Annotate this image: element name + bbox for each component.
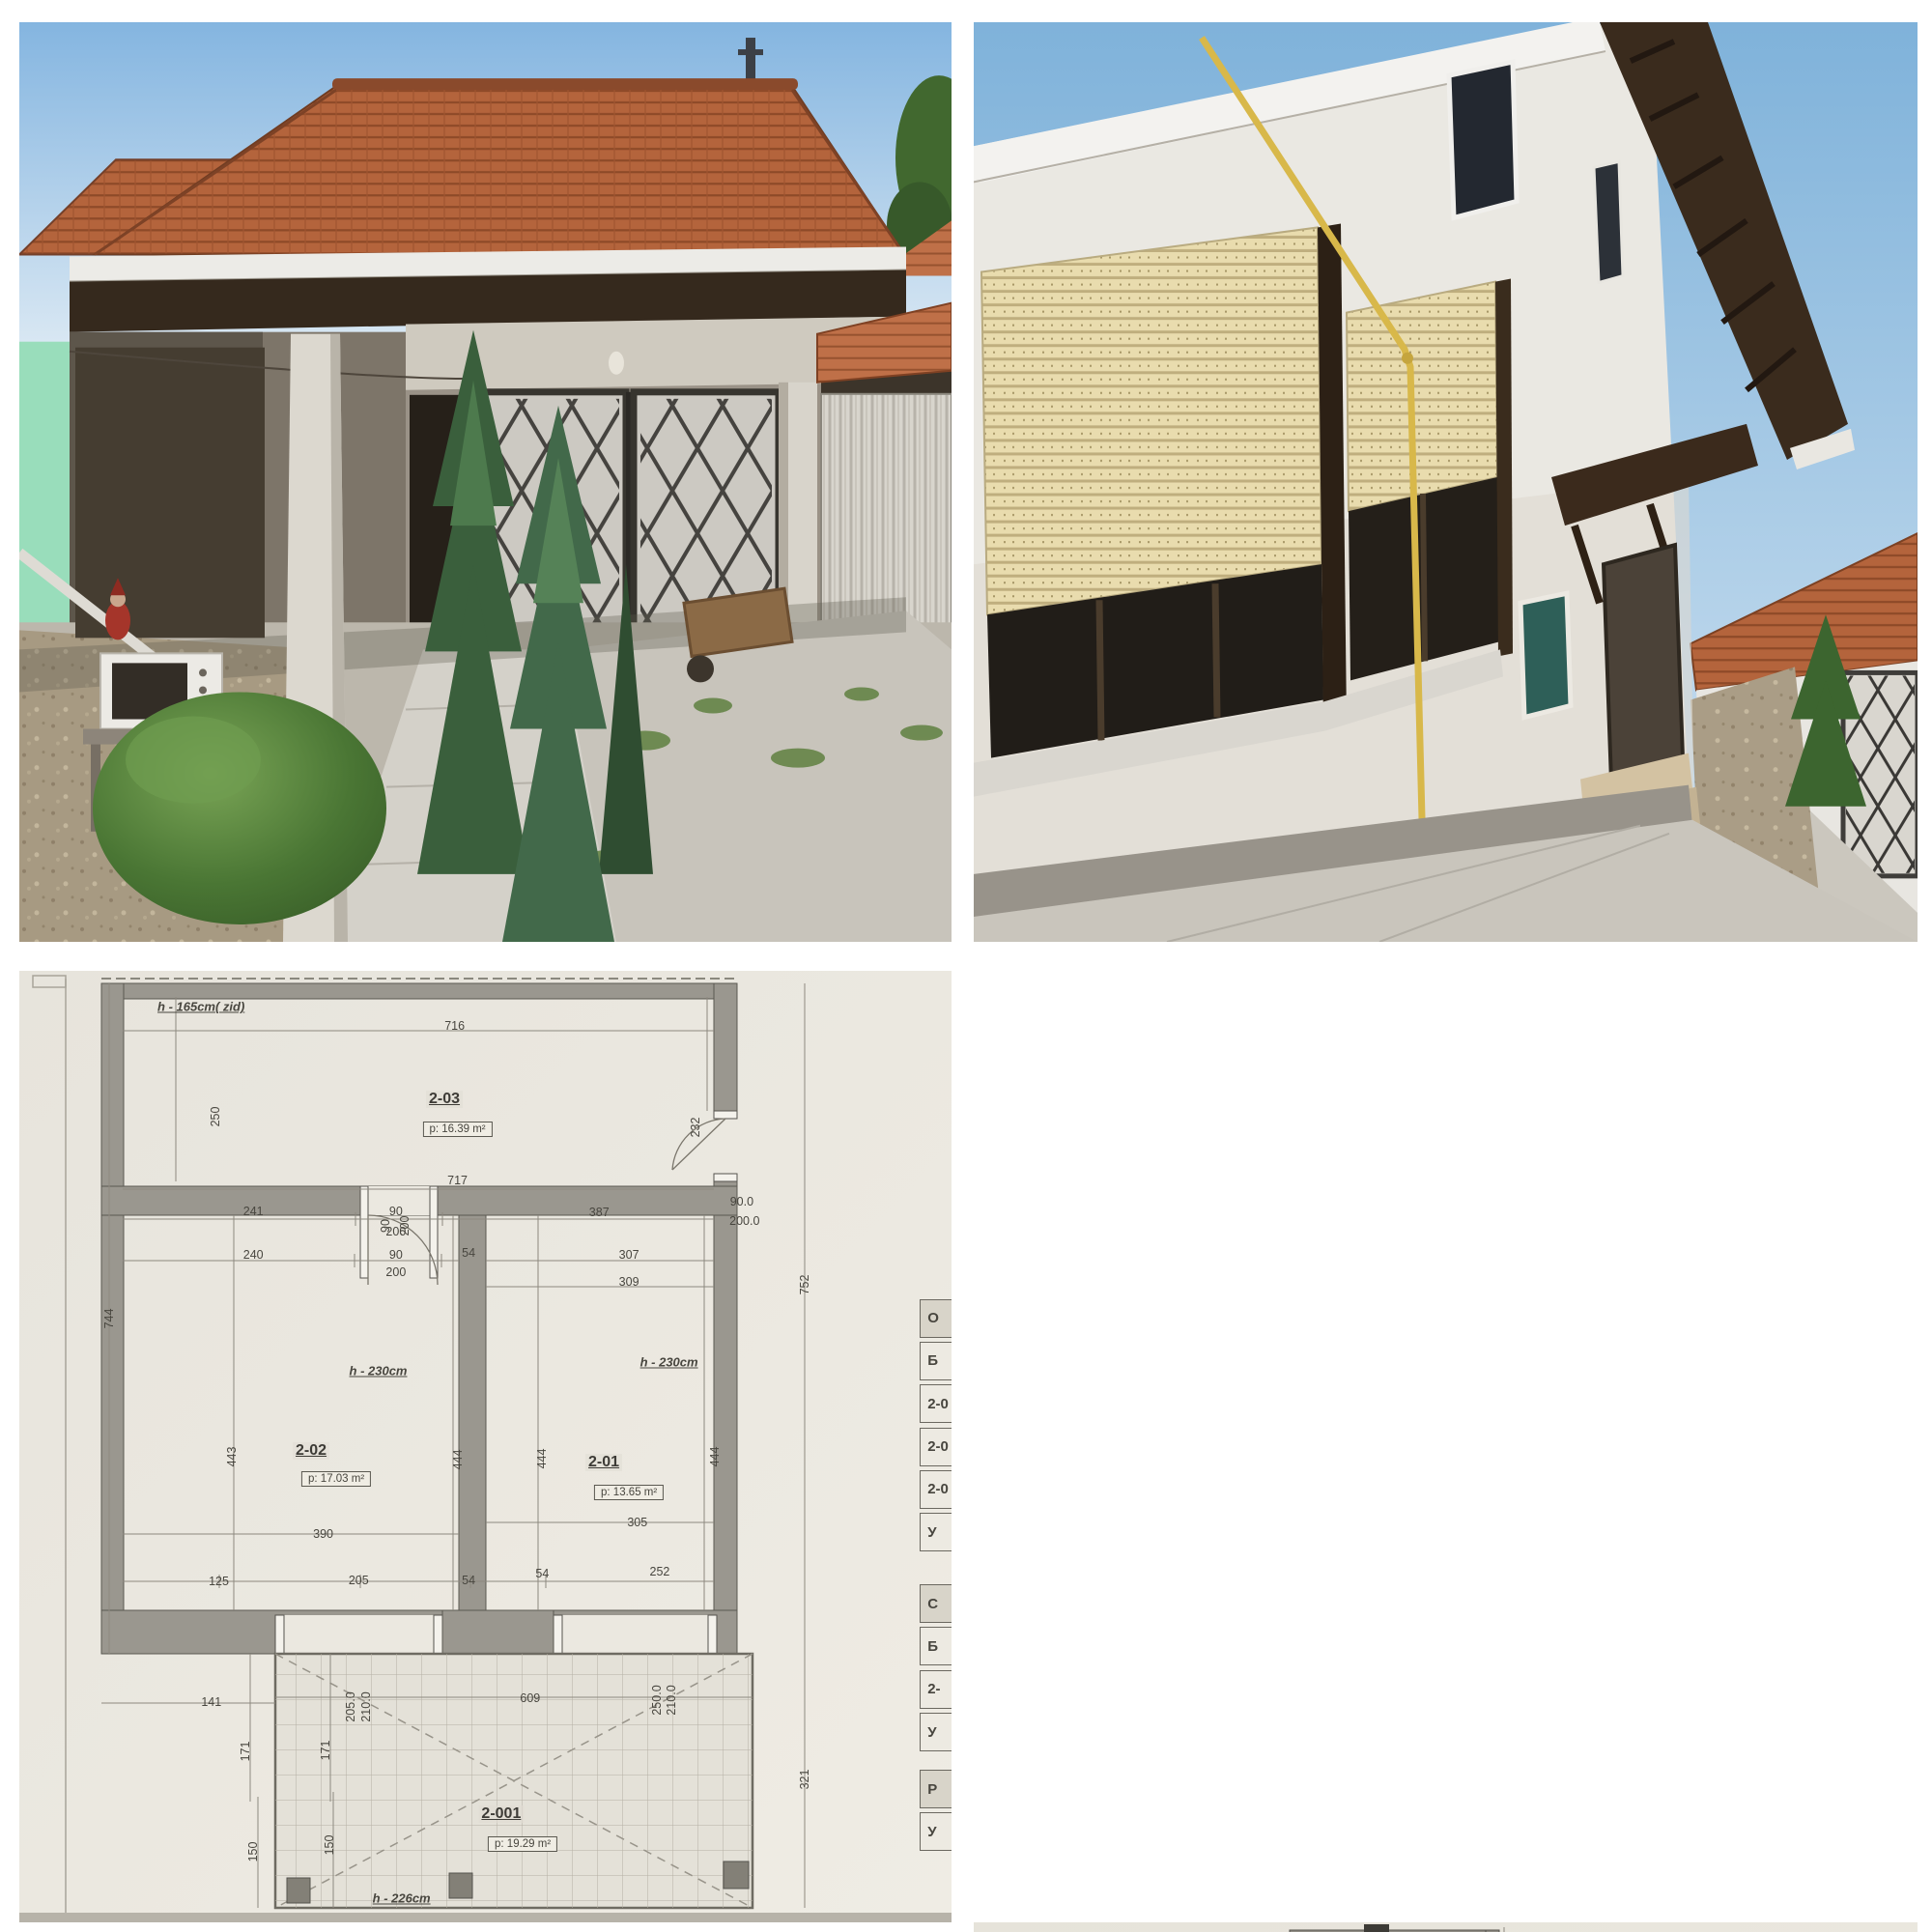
floor-plan-ground[interactable]: h - 165cm( zid)7162-03p: 16.39 m²2502327… — [19, 971, 952, 1922]
plan-label: Р — [920, 1770, 952, 1808]
plan-label: 171 — [319, 1740, 332, 1760]
plan-label: У — [920, 1713, 952, 1751]
plan-label: 54 — [462, 1574, 475, 1587]
plan-label: 250 — [209, 1106, 222, 1126]
plan-label: 444 — [708, 1447, 722, 1467]
plan-label: 744 — [102, 1308, 116, 1328]
roof-ridge — [332, 78, 798, 90]
house-side-photo-art — [974, 22, 1918, 942]
plan-label: 716 — [444, 1019, 465, 1033]
plan-label: p: 17.03 m² — [301, 1471, 371, 1487]
plan-label: 443 — [225, 1447, 239, 1467]
plan-label: 2-03 — [426, 1091, 463, 1108]
shuttered-window-left — [981, 227, 1323, 757]
plan-label: 609 — [520, 1691, 540, 1705]
round-bush — [93, 692, 386, 924]
plan-label: 171 — [239, 1741, 252, 1761]
plan-label: 2-0 — [920, 1470, 952, 1509]
plan-label: 90.0 — [730, 1195, 753, 1208]
plan-label: 252 — [650, 1565, 670, 1578]
upper-window — [1449, 62, 1517, 217]
plan-label: 200.0 — [729, 1214, 759, 1228]
plan-label: 2-001 — [478, 1805, 524, 1823]
plan-label: 444 — [535, 1449, 549, 1469]
plan-label: p: 13.65 m² — [594, 1485, 664, 1500]
porch-lamp — [609, 352, 624, 375]
plan-label: 717 — [447, 1174, 468, 1187]
plan-label: О — [920, 1299, 952, 1338]
upper-plan-labels: 1-06p: 14.65 m²306282h - 239cm991-07p: 0… — [974, 1922, 1918, 1932]
plan-label: p: 16.39 m² — [422, 1122, 492, 1137]
plan-label: 2- — [920, 1670, 952, 1709]
plan-label: 2-01 — [585, 1454, 622, 1471]
plan-label: h - 165cm( zid) — [157, 1000, 244, 1014]
plan-label: Б — [920, 1342, 952, 1380]
plan-label: 241 — [243, 1205, 264, 1218]
teal-window — [1520, 593, 1571, 717]
plan-label: 309 — [619, 1275, 639, 1289]
plan-label: 54 — [535, 1567, 549, 1580]
plan-label: 125 — [209, 1575, 229, 1588]
plan-label: 444 — [451, 1450, 465, 1470]
plan-label: 90 — [389, 1248, 403, 1262]
plan-label: 210.0 — [665, 1685, 678, 1715]
photo-courtyard[interactable] — [19, 22, 952, 942]
attic-slit-window — [1594, 161, 1623, 282]
plan-label: 2-0 — [920, 1428, 952, 1466]
plan-label: Б — [920, 1627, 952, 1665]
plan-label: 2-0 — [920, 1384, 952, 1423]
plan-label: 200 — [398, 1216, 412, 1236]
plan-label: 232 — [689, 1117, 702, 1137]
ground-plan-labels: h - 165cm( zid)7162-03p: 16.39 m²2502327… — [19, 971, 952, 1922]
plan-label: 200 — [385, 1265, 406, 1279]
plan-label: 141 — [201, 1695, 221, 1709]
plan-label: 752 — [798, 1275, 811, 1295]
plan-label: 240 — [243, 1248, 264, 1262]
plan-label: 387 — [589, 1206, 610, 1219]
photo-house-side[interactable] — [974, 22, 1918, 942]
plan-label: h - 226cm — [373, 1891, 431, 1906]
plan-label: У — [920, 1513, 952, 1551]
plan-label: 321 — [798, 1770, 811, 1790]
plan-label: 150 — [246, 1842, 260, 1862]
plan-label: p: 19.29 m² — [488, 1836, 557, 1852]
floor-plan-upper[interactable]: По+ПР+1 106/1 БРУТО ПОВРШИНА СПРАТА ОБЈЕ… — [974, 1922, 1918, 1932]
plan-label: h - 230cm — [640, 1354, 698, 1369]
plan-label: 307 — [619, 1248, 639, 1262]
plan-label: 2-02 — [293, 1442, 329, 1460]
entry-door — [1604, 545, 1683, 782]
plan-label: У — [920, 1812, 952, 1851]
courtyard-photo-art — [19, 22, 952, 942]
plan-label: 250.0 — [650, 1685, 664, 1715]
shuttered-window-right — [1347, 279, 1513, 681]
real-estate-collage: h - 165cm( zid)7162-03p: 16.39 m²2502327… — [0, 0, 1932, 1932]
plan-label: 210.0 — [359, 1692, 373, 1722]
plan-label: 150 — [323, 1835, 336, 1856]
plan-label: С — [920, 1584, 952, 1623]
plan-label: 390 — [313, 1527, 333, 1541]
plan-label: 205 — [349, 1574, 369, 1587]
plan-label: 205.0 — [344, 1692, 357, 1722]
plan-label: 90 — [379, 1219, 392, 1233]
plan-label: 305 — [627, 1516, 647, 1529]
plan-label: 54 — [462, 1246, 475, 1260]
plan-label: h - 230cm — [350, 1363, 408, 1378]
